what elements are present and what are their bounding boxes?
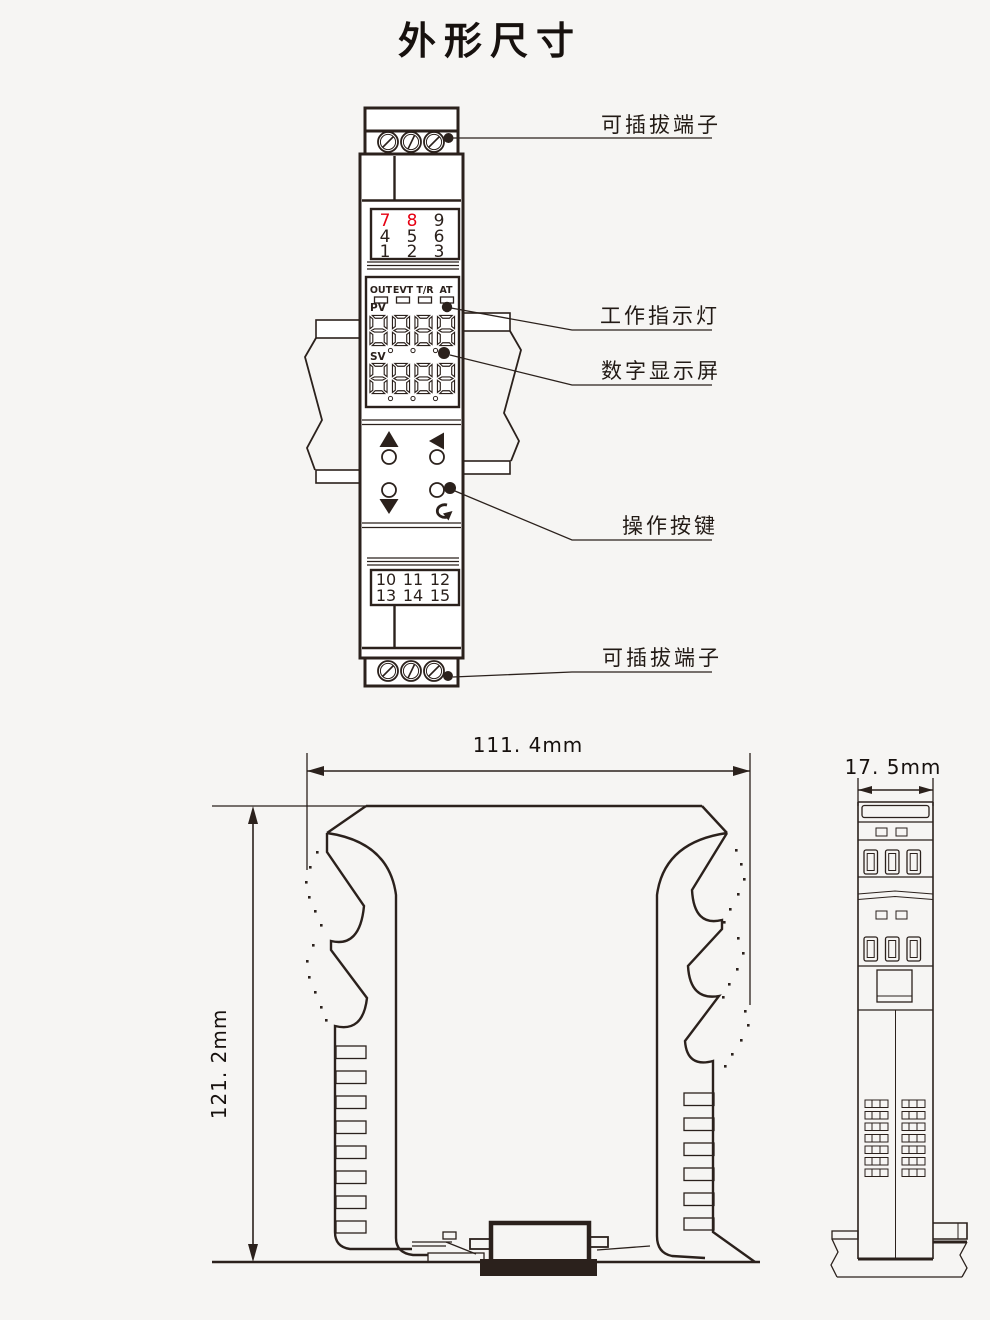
left-clip-dotted-line bbox=[305, 851, 328, 1022]
digital-display: OUT EVT T/R AT PV SV bbox=[366, 277, 459, 407]
depth-dim-label: 17. 5mm bbox=[845, 755, 942, 779]
width-dimension: 111. 4mm bbox=[307, 733, 750, 1005]
callout-dot-indicator bbox=[442, 302, 452, 312]
callout-dot-terminal-top bbox=[444, 133, 454, 143]
terminal-number: 3 bbox=[434, 242, 445, 262]
right-clip-dotted-line bbox=[722, 849, 750, 1068]
callout-display: 数字显示屏 bbox=[601, 359, 721, 383]
led-label-at: AT bbox=[439, 285, 453, 296]
top-terminal-block bbox=[365, 108, 458, 154]
end-view-terminal-slots-top bbox=[864, 850, 921, 874]
callout-indicator: 工作指示灯 bbox=[600, 304, 720, 328]
left-vent-slots bbox=[336, 1046, 366, 1233]
terminal-number: 1 bbox=[380, 242, 391, 262]
end-view-din-rail bbox=[831, 1223, 967, 1277]
module-profile bbox=[305, 806, 755, 1262]
page-title: 外形尺寸 bbox=[398, 19, 582, 63]
height-dim-label: 121. 2mm bbox=[207, 1009, 231, 1120]
sv-label: SV bbox=[370, 351, 387, 363]
din-rail-right-wing bbox=[462, 313, 521, 474]
side-view-figure: 111. 4mm 121. 2mm bbox=[207, 733, 760, 1276]
bottom-terminal-block bbox=[365, 658, 458, 686]
din-rail-cross-section bbox=[470, 1223, 608, 1276]
front-view-figure: 7 8 9 4 5 6 1 2 3 OUT EVT T/R AT bbox=[305, 108, 722, 686]
din-rail-left-wing bbox=[305, 320, 361, 483]
callout-dot-display bbox=[438, 347, 450, 359]
end-view-figure: 17. 5mm bbox=[831, 755, 967, 1277]
lower-terminal-number-panel: 10 11 12 13 14 15 bbox=[371, 570, 459, 605]
led-label-evt: EVT bbox=[393, 285, 414, 296]
terminal-number: 13 bbox=[376, 586, 396, 605]
right-vent-slots bbox=[684, 1093, 714, 1230]
led-label-tr: T/R bbox=[416, 285, 434, 296]
callout-lines bbox=[450, 138, 712, 677]
end-view-terminal-slots-bottom bbox=[864, 937, 921, 961]
callout-terminal-top: 可插拔端子 bbox=[601, 113, 721, 137]
callout-terminal-bottom: 可插拔端子 bbox=[602, 646, 722, 670]
right-clip-scallops bbox=[685, 833, 755, 1262]
callout-dot-buttons bbox=[444, 482, 456, 494]
depth-dimension: 17. 5mm bbox=[845, 755, 942, 806]
upper-terminal-number-panel: 7 8 9 4 5 6 1 2 3 bbox=[371, 209, 459, 262]
callout-dot-terminal-bottom bbox=[443, 671, 453, 681]
rail-clip-assembly bbox=[412, 1232, 650, 1262]
pv-label: PV bbox=[370, 302, 387, 314]
terminal-number: 15 bbox=[430, 586, 450, 605]
terminal-number: 2 bbox=[407, 242, 418, 262]
end-view-module bbox=[858, 802, 933, 1259]
led-label-out: OUT bbox=[370, 285, 393, 296]
terminal-number: 14 bbox=[403, 586, 423, 605]
dimension-drawing: 外形尺寸 bbox=[0, 0, 990, 1320]
width-dim-label: 111. 4mm bbox=[473, 733, 584, 757]
callout-buttons: 操作按键 bbox=[622, 514, 718, 538]
left-clip-scallops bbox=[327, 833, 412, 1249]
